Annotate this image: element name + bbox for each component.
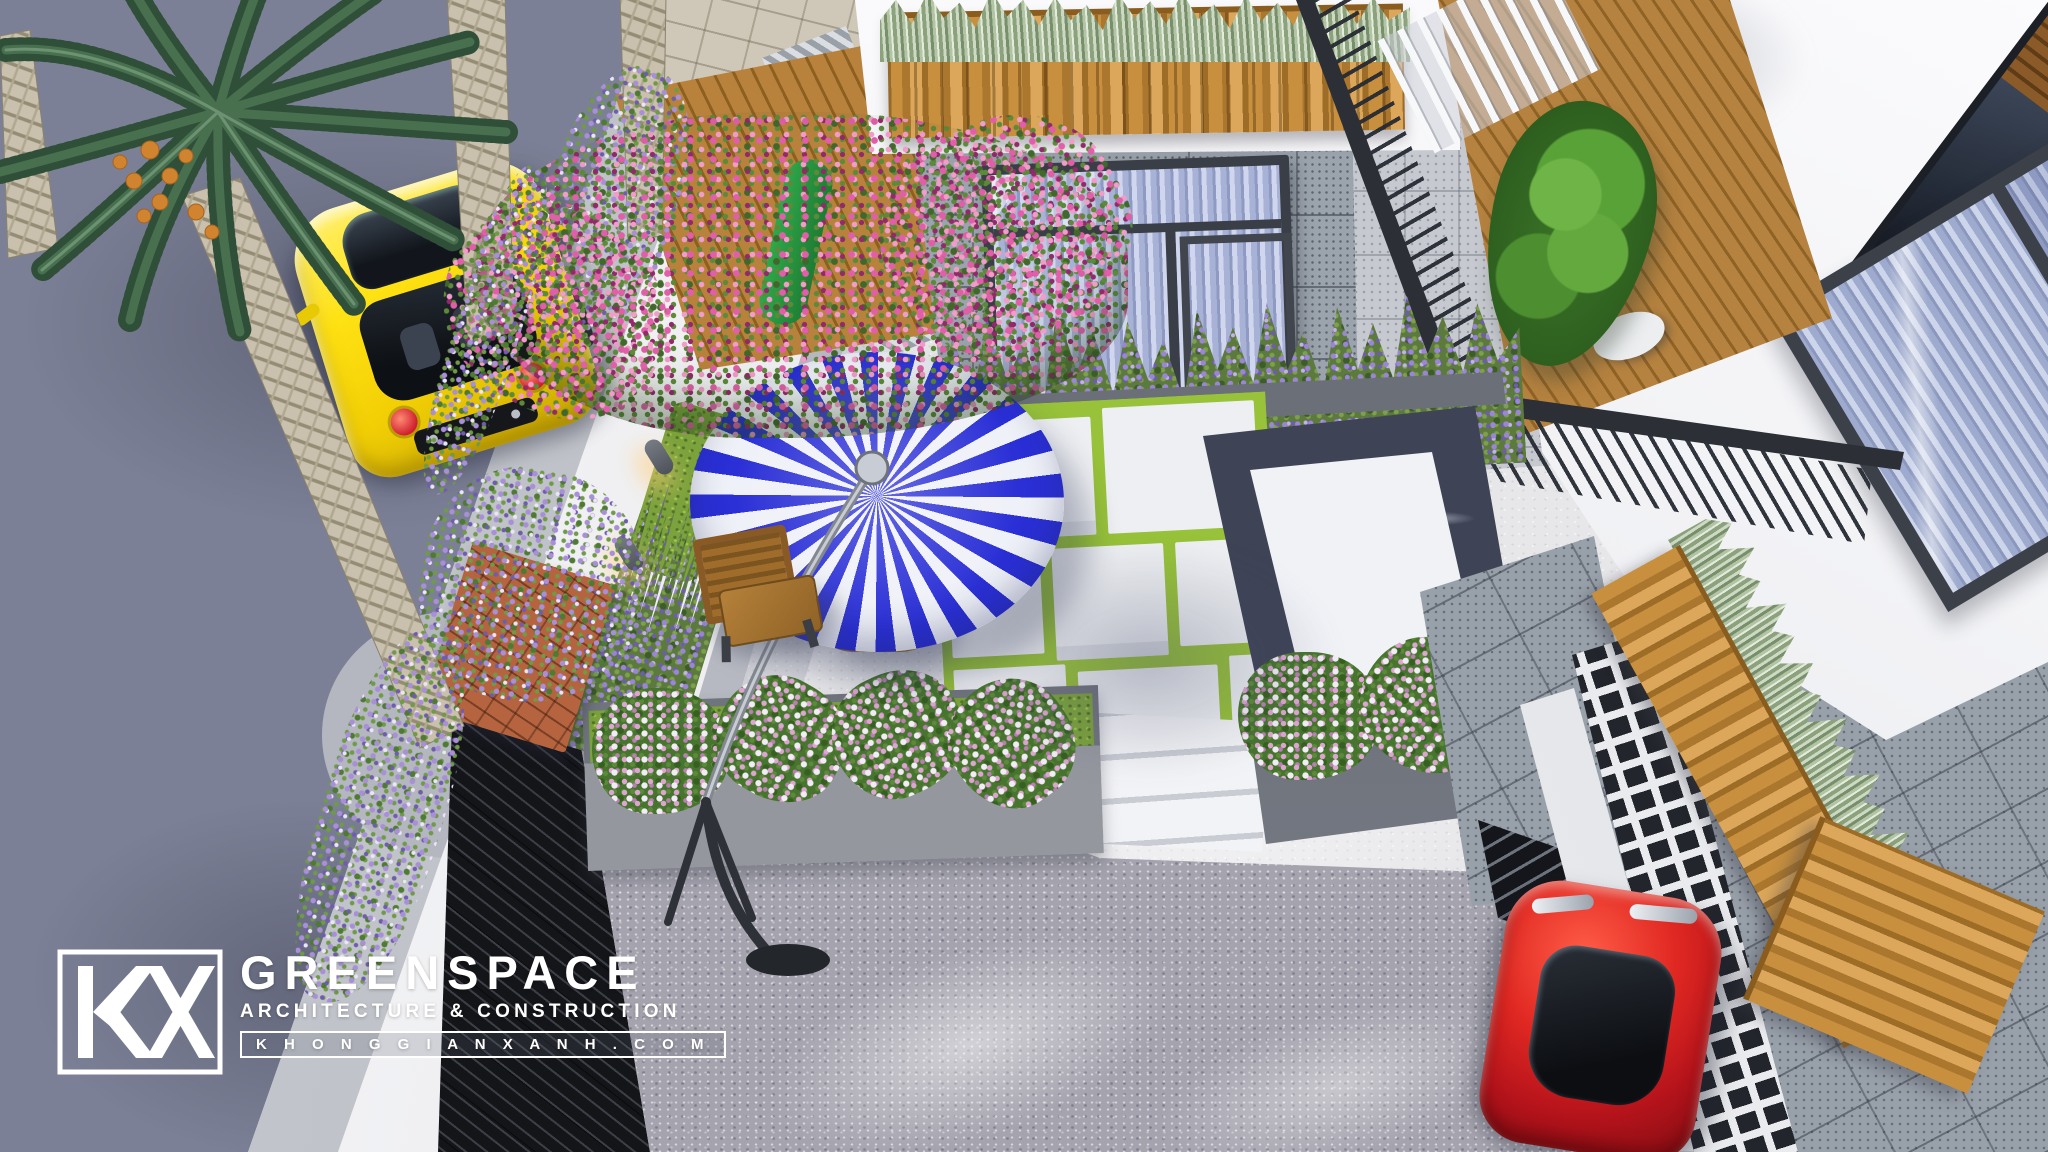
sidewalk-corner (322, 612, 578, 858)
watermark-logo: GREENSPACE ARCHITECTURE & CONSTRUCTION K… (56, 948, 726, 1076)
umbrella-shadow (960, 540, 1340, 780)
chair-shadow (707, 576, 847, 668)
fence-flower-box (505, 49, 718, 358)
logo-text-block: GREENSPACE ARCHITECTURE & CONSTRUCTION K… (240, 948, 726, 1058)
street-flower-bushes (264, 614, 495, 1019)
perimeter-wall-inner-face (0, 0, 2048, 1152)
yellow-car-wheel (547, 289, 596, 354)
window-transom-bar (993, 219, 1281, 238)
marble-walk-white (0, 0, 2048, 1152)
corner-window-louvered (1844, 0, 2048, 373)
car-interior-seat2 (450, 300, 495, 352)
yellow-car-diffuser (412, 396, 540, 457)
brick-planter (422, 542, 617, 753)
cypress-tree (1458, 84, 1680, 383)
sidewalk-flower-strip (403, 156, 569, 505)
perimeter-wall (0, 0, 2048, 1152)
pathend-flowers-a (1238, 652, 1378, 780)
bougainvillea-main (472, 112, 1128, 438)
brand-website: K H O N G G I A N X A N H . C O M (240, 1031, 726, 1058)
louver-fence (0, 0, 2048, 1152)
driveway-light-streak2 (1137, 963, 1543, 1152)
stone-feature-wall (0, 0, 2048, 1152)
timber-planter-box (887, 4, 1405, 139)
corner-flower-bush (399, 450, 660, 719)
window-mullion (1165, 223, 1183, 445)
large-right-window (1768, 70, 2048, 612)
exhaust-right (510, 408, 521, 419)
louver-wood (2001, 0, 2048, 169)
yellow-car-taillight-left (387, 405, 421, 439)
yellow-car-mirror-right (539, 224, 568, 238)
brand-tagline: ARCHITECTURE & CONSTRUCTION (240, 1001, 726, 1023)
balcony-deck (0, 0, 2048, 1152)
grass-strip-wall (624, 399, 743, 585)
flower-bush-2 (694, 654, 868, 825)
silver-plants-right (1668, 502, 1998, 1012)
bougainvillea-lobe-a (403, 159, 708, 460)
lavender-strip-wall (566, 453, 759, 777)
render-scene: GREENSPACE ARCHITECTURE & CONSTRUCTION K… (0, 0, 2048, 1152)
red-car-body (1473, 873, 1730, 1152)
lavender-bed-main (933, 275, 1526, 493)
palm-trees (0, 0, 2048, 1152)
chair-seat (717, 574, 824, 648)
entry-steps (0, 0, 2048, 1152)
planter-moss (589, 693, 1095, 763)
chair-leg-a (721, 636, 730, 662)
kids-slide (755, 155, 837, 329)
right-window-pane-a (1787, 193, 2048, 593)
pathend-planter-box (0, 0, 2048, 1152)
breeze-block-screen (0, 0, 2048, 1152)
entrance-gate (0, 0, 2048, 1152)
entry-pavers (0, 0, 2048, 1152)
carport-opening (0, 0, 2048, 1152)
sidewalk (0, 0, 2048, 1152)
yellow-car-windshield (335, 177, 503, 294)
balcony-handrail-front (0, 0, 2048, 1152)
main-window (981, 155, 1299, 462)
stone-wall-lower-right (0, 0, 2048, 1152)
yellow-car-taillight-right (516, 360, 550, 394)
flower-bush-3 (812, 650, 984, 818)
upper-ledge (0, 0, 2048, 1152)
yellow-car-mirror-left (292, 301, 322, 328)
driveway-light-streak (741, 890, 1199, 1152)
yellow-car-rear-window (353, 259, 544, 408)
parasol-pole (0, 0, 2048, 1152)
wall-shadow (0, 0, 2048, 1152)
timber-box-right (1591, 545, 1931, 1049)
carport-side-wall (0, 0, 2048, 1152)
red-car-glass (1522, 940, 1680, 1111)
pathend-flowers-b (1334, 611, 1522, 798)
courtyard-sun-wash (850, 520, 1550, 1020)
red-car-headlight-right (1629, 904, 1698, 925)
door-pane-frame (1180, 233, 1300, 457)
wall-lamp-1 (641, 436, 676, 478)
timber-box-lower-right (1743, 816, 2045, 1094)
red-car-headlight-left (1531, 894, 1594, 914)
glass-reflection (991, 165, 1288, 451)
exhaust-left (428, 434, 439, 445)
parasol-canopy (690, 352, 1064, 652)
right-window-pane-b (2005, 89, 2048, 462)
yellow-sports-car (281, 148, 608, 487)
cypress-pot (1587, 303, 1672, 370)
flower-bush-1 (592, 688, 728, 814)
wooden-chair (692, 517, 844, 662)
brand-name: GREENSPACE (240, 948, 726, 997)
recess-floor-tiles (0, 0, 2048, 1152)
street (0, 0, 2048, 1152)
chair-leg-b (802, 619, 819, 648)
bougainvillea-lobe-b (839, 73, 1171, 397)
flower-bush-4 (925, 656, 1098, 831)
logo-mark-kx (56, 948, 224, 1076)
balcony-railing-left (0, 0, 2048, 1152)
red-car (1473, 873, 1730, 1152)
car-interior-seat (398, 320, 443, 372)
balcony-handrail-left (0, 0, 2048, 1152)
timber-planter-right (1561, 538, 1944, 1066)
planter-silver-plants (880, 0, 1410, 62)
window-glass (991, 165, 1288, 451)
timber-deck (0, 0, 2048, 1152)
white-balustrade (1378, 0, 1601, 153)
yellow-car-shadow (276, 157, 627, 500)
planter-rim (0, 0, 2048, 1152)
right-facade (0, 0, 2048, 1152)
flower-planter-long (582, 685, 1104, 871)
white-beam (0, 0, 2048, 1152)
yellow-car-body (281, 148, 608, 487)
patio-table (814, 548, 940, 652)
corner-window-glass (1855, 78, 2048, 363)
marble-border-dark (0, 0, 2048, 1152)
wall-lamp-2 (611, 532, 646, 574)
pane-a-streak (1787, 193, 2048, 593)
grass-joint-paving (930, 391, 1287, 812)
driveway (0, 0, 2048, 1152)
balcony-railing-front (0, 0, 2048, 1152)
courtyard-floor (0, 0, 2048, 1152)
chair-back (692, 524, 800, 625)
facade-leaf-shadow (1490, 0, 1810, 150)
red-car-shadow (1464, 881, 1742, 1152)
